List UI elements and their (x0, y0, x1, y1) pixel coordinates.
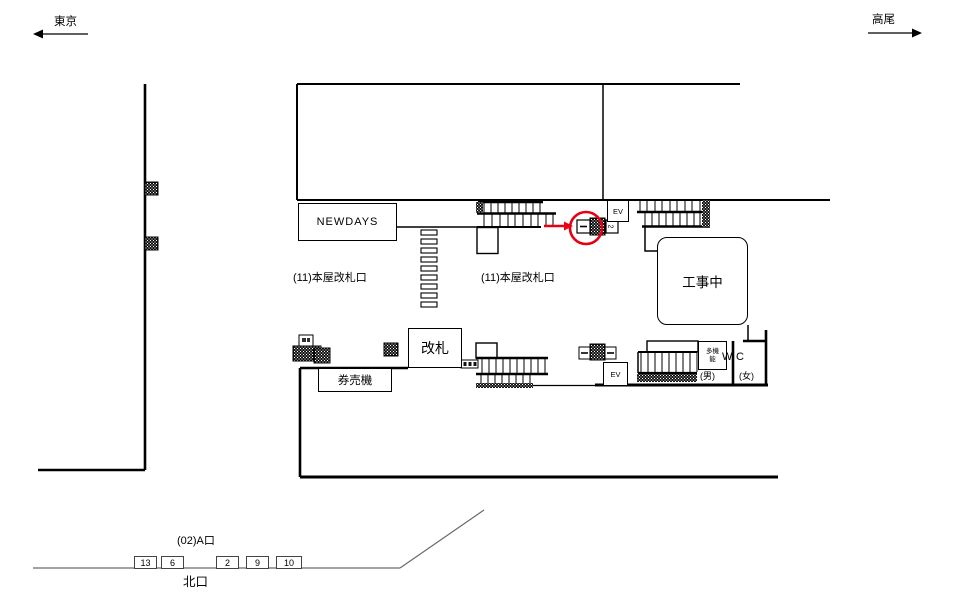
lower-right-stairs (637, 341, 698, 382)
elevator-lower: EV (603, 362, 628, 386)
exit-number-2: 2 (216, 556, 239, 569)
exit-number-10: 10 (276, 556, 302, 569)
multifunction-line1: 多機 (706, 348, 719, 356)
left-outer-wall (38, 84, 145, 470)
upper-center-stairs (476, 202, 556, 254)
exit-number-13: 13 (134, 556, 157, 569)
toilet-women-label: (女) (739, 372, 754, 381)
lower-sign-icons (579, 344, 616, 360)
wc-label-c: C (736, 352, 744, 363)
gate-area-label-right: (11)本屋改札口 (481, 273, 555, 284)
elevator-upper: EV (607, 200, 629, 222)
a-exit-label: (02)A口 (177, 536, 215, 547)
gate-area-label-left: (11)本屋改札口 (293, 273, 367, 284)
direction-label-tokyo: 東京 (54, 17, 77, 29)
tokyo-arrow-icon (33, 30, 88, 39)
exit-number-9: 9 (246, 556, 269, 569)
ticket-gate-row (421, 230, 437, 307)
lower-center-stairs (461, 343, 548, 388)
direction-label-takao: 高尾 (872, 15, 895, 27)
plan-linework (0, 0, 960, 605)
kaisatsu-gate-box: 改札 (408, 328, 462, 368)
newdays-shop: NEWDAYS (298, 203, 397, 241)
station-floor-plan: 東京 高尾 NEWDAYS (11)本屋改札口 (11)本屋改札口 改札 券売機… (0, 0, 960, 605)
wc-label-w: W (722, 352, 732, 363)
exit-number-6: 6 (161, 556, 184, 569)
takao-arrow-icon (868, 29, 922, 38)
ticket-machine-box: 券売機 (318, 368, 392, 392)
target-sign-number: 2 (606, 225, 613, 229)
left-wall-sign-icons (145, 182, 158, 250)
toilet-men-label: (男) (700, 372, 715, 381)
concourse-sign-icons (293, 335, 398, 363)
construction-area: 工事中 (657, 237, 748, 325)
north-exit-label: 北口 (183, 576, 208, 589)
multifunction-line2: 能 (709, 356, 716, 364)
